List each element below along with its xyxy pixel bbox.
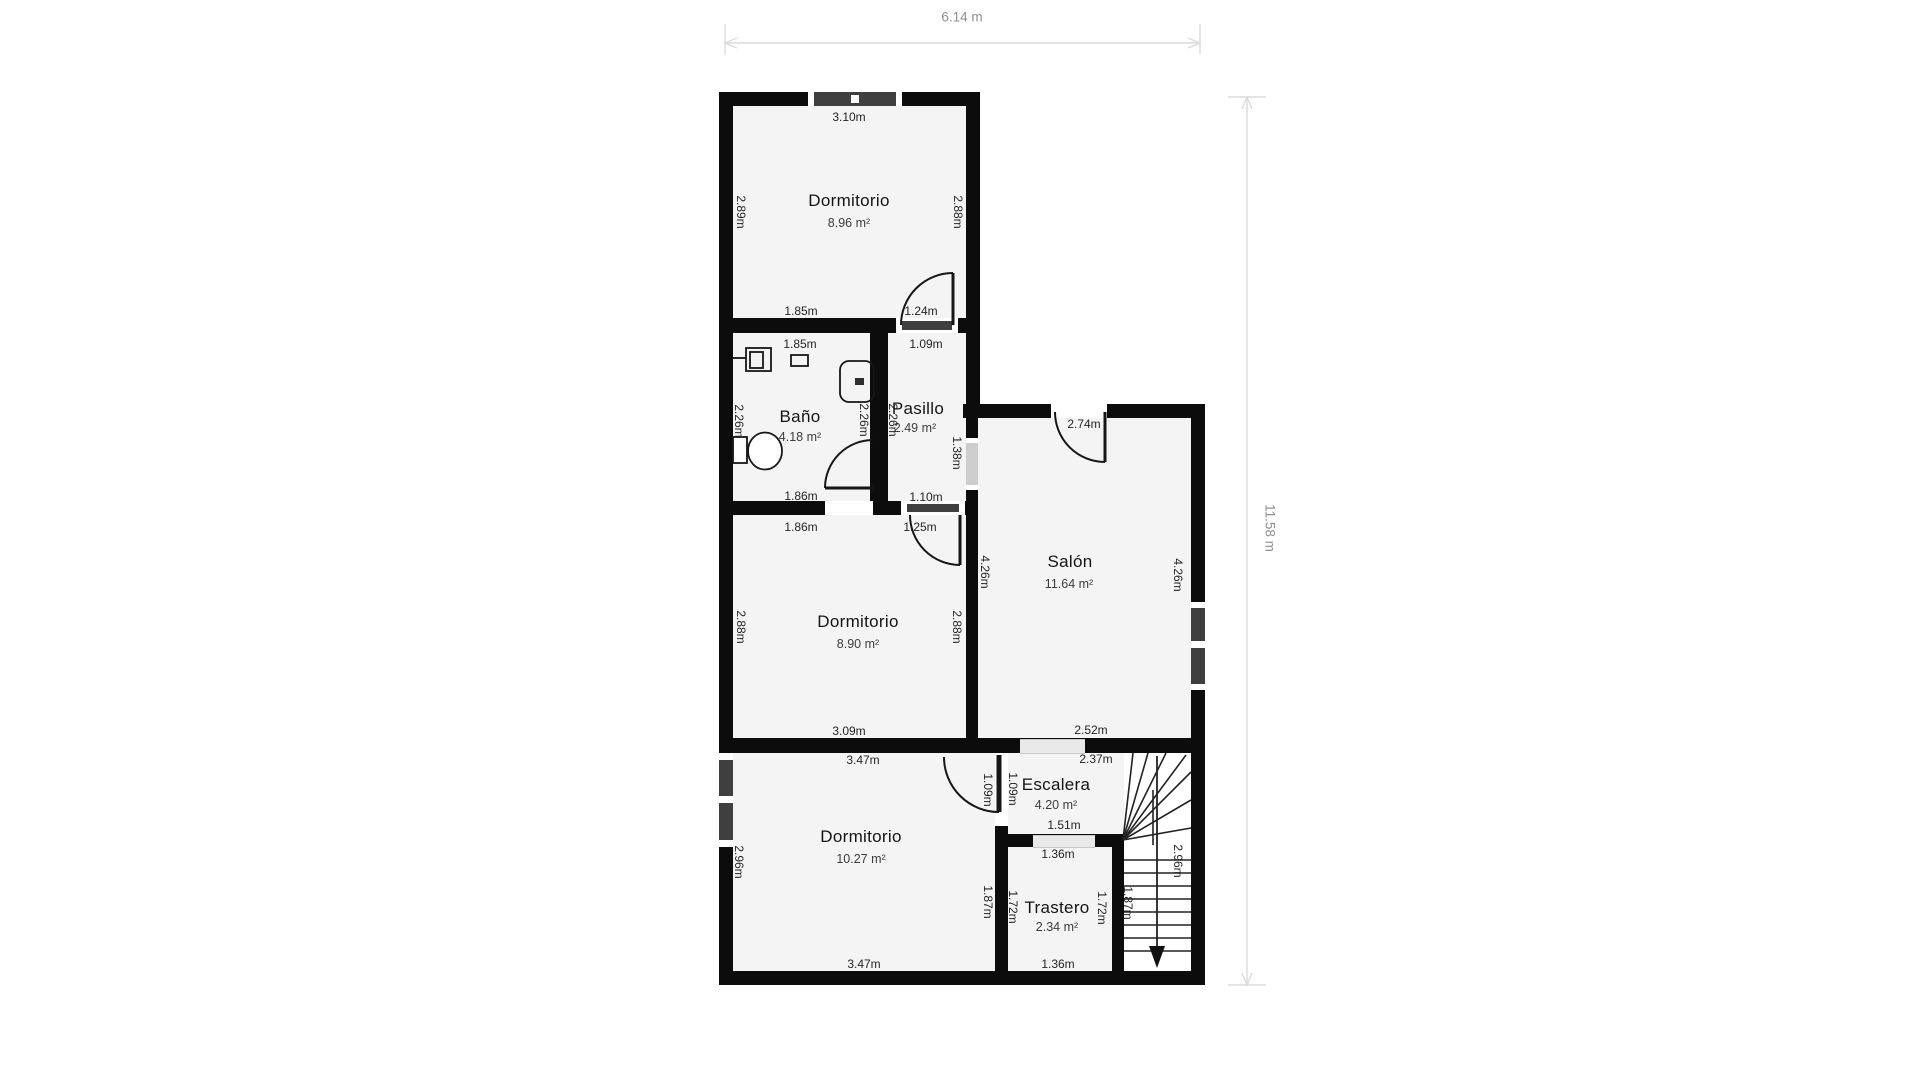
wall-dim: 1.24m xyxy=(904,304,937,318)
wall-dim: 1.86m xyxy=(784,520,817,534)
wall-dim: 4.26m xyxy=(978,555,992,588)
room-area-escalera: 4.20 m² xyxy=(1035,798,1077,812)
room-area-dormitorio2: 8.90 m² xyxy=(837,637,879,651)
overall-width-label: 6.14 m xyxy=(941,10,982,25)
wall-dim: 2.26m xyxy=(857,403,871,436)
room-area-dormitorio3: 10.27 m² xyxy=(836,852,885,866)
room-name-escalera: Escalera xyxy=(1022,775,1091,795)
room-name-salon: Salón xyxy=(1048,552,1093,572)
wall-dim: 1.09m xyxy=(909,337,942,351)
wall-dim: 1.72m xyxy=(1095,891,1109,924)
wall-dim: 1.36m xyxy=(1041,957,1074,971)
wall-dim: 2.88m xyxy=(951,195,965,228)
door-arc-bano xyxy=(825,440,873,488)
room-area-salon: 11.64 m² xyxy=(1045,577,1093,591)
wall-dim: 1.10m xyxy=(909,490,942,504)
room-name-dormitorio1: Dormitorio xyxy=(808,191,889,211)
room-name-dormitorio2: Dormitorio xyxy=(817,612,898,632)
wall-dim: 3.10m xyxy=(832,110,865,124)
wall-dim: 2.96m xyxy=(1171,844,1185,877)
floor-plan: Dormitorio 8.96 m² 3.10m 2.89m 2.88m 1.8… xyxy=(0,0,1920,1080)
room-name-bano: Baño xyxy=(780,407,821,427)
wall-dim: 2.89m xyxy=(734,195,748,228)
wall-dim: 3.09m xyxy=(832,724,865,738)
dimension-line-width xyxy=(725,24,1200,54)
wall-dim: 1.72m xyxy=(1006,890,1020,923)
wall-dim: 4.26m xyxy=(1171,558,1185,591)
wall-dim: 1.36m xyxy=(1041,847,1074,861)
room-name-dormitorio3: Dormitorio xyxy=(820,827,901,847)
wall-dim: 1.25m xyxy=(903,520,936,534)
wall-dim: 2.88m xyxy=(950,610,964,643)
bathroom-sink-icon xyxy=(733,348,808,371)
wall-dim: 1.51m xyxy=(1047,818,1080,832)
room-area-pasillo: 2.49 m² xyxy=(894,421,936,435)
wall-dim: 2.74m xyxy=(1067,417,1100,431)
wall-dim: 1.86m xyxy=(784,489,817,503)
wall-dim: 1.87m xyxy=(981,885,995,918)
plan-linework xyxy=(0,0,1920,1080)
bidet-icon xyxy=(840,361,874,402)
wall-dim: 3.47m xyxy=(846,753,879,767)
wall-dim: 2.26m xyxy=(732,404,746,437)
room-area-trastero: 2.34 m² xyxy=(1036,920,1078,934)
wall-dim: 1.09m xyxy=(1006,772,1020,805)
wall-dim: 1.85m xyxy=(784,304,817,318)
room-area-dormitorio1: 8.96 m² xyxy=(828,216,870,230)
stairs-direction-arrow xyxy=(1149,946,1165,968)
wall-dim: 2.26m xyxy=(886,403,900,436)
room-name-trastero: Trastero xyxy=(1024,898,1089,918)
dimension-line-height xyxy=(1228,97,1266,985)
room-area-bano: 4.18 m² xyxy=(779,430,821,444)
wall-dim: 2.52m xyxy=(1074,723,1107,737)
wall-dim: 3.47m xyxy=(847,957,880,971)
wall-dim: 1.09m xyxy=(981,773,995,806)
wall-dim: 2.37m xyxy=(1079,752,1112,766)
wall-dim: 1.85m xyxy=(783,337,816,351)
overall-height-label: 11.58 m xyxy=(1263,504,1278,552)
toilet-icon xyxy=(733,433,782,470)
wall-dim: 2.96m xyxy=(732,845,746,878)
wall-dim: 1.87m xyxy=(1121,886,1135,919)
wall-dim: 2.88m xyxy=(734,610,748,643)
wall-dim: 1.38m xyxy=(950,436,964,469)
